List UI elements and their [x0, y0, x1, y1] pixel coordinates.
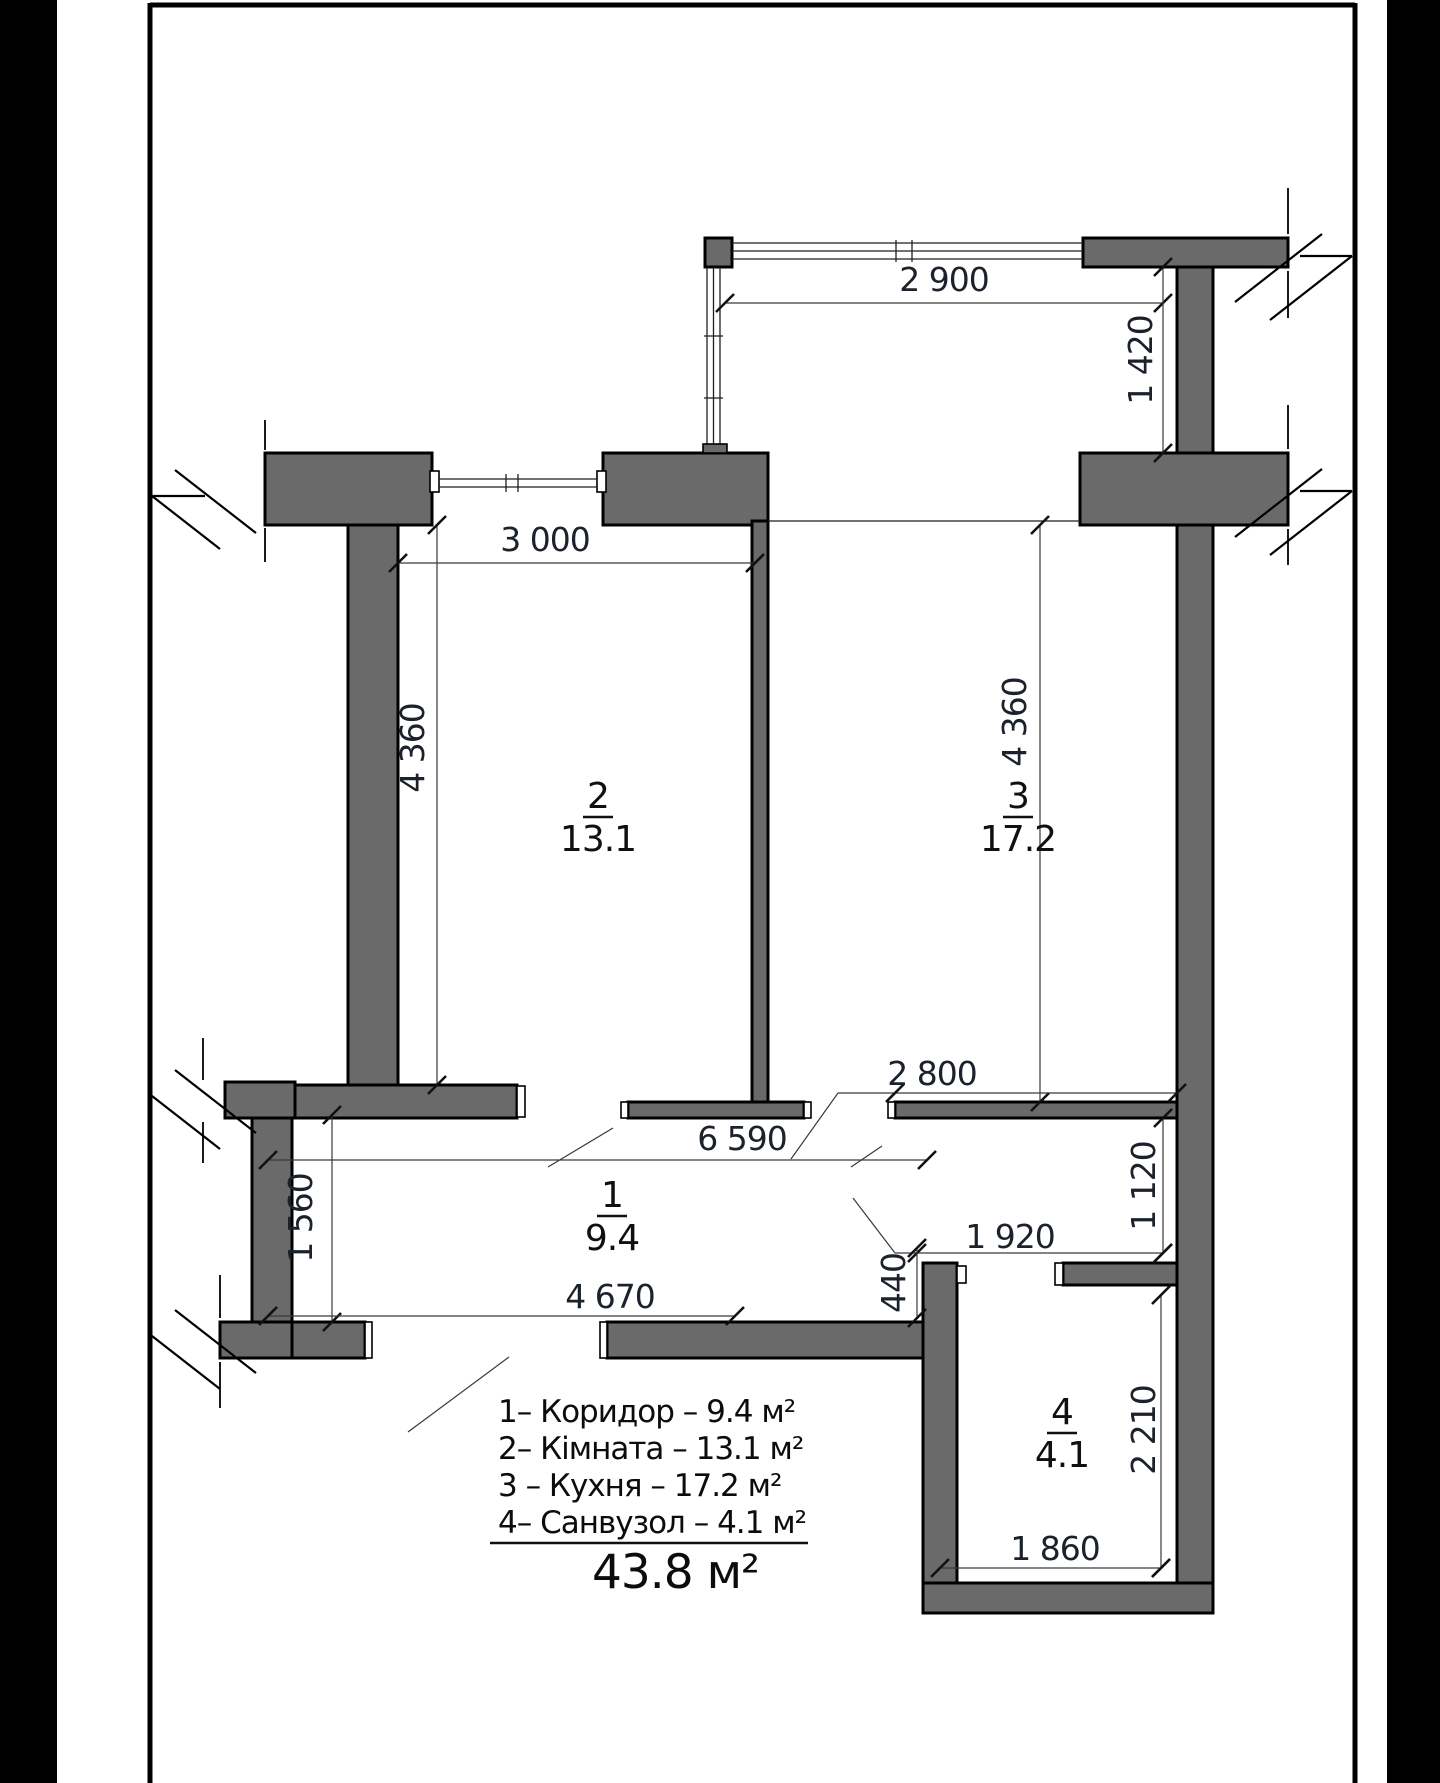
door-cap [365, 1322, 372, 1358]
wall-corridor-bottom [607, 1322, 923, 1358]
wall-bath-bottom [923, 1583, 1213, 1613]
door-cap [517, 1086, 525, 1117]
room3-area: 17.2 [980, 819, 1056, 860]
wall-segment [1080, 453, 1288, 525]
floorplan-page: 2 900 1 420 3 000 4 360 4 360 2 800 6 59… [0, 0, 1440, 1783]
room1-number: 1 [601, 1175, 623, 1216]
legend-line-3: 3 – Кухня – 17.2 м² [498, 1468, 781, 1504]
wall-segment [225, 1082, 295, 1118]
wall-bath-left [923, 1263, 957, 1613]
room1-area: 9.4 [585, 1218, 639, 1259]
right-black-strip [1387, 0, 1440, 1783]
wall-bath-top [1063, 1263, 1177, 1285]
dim-balcony-width: 2 900 [899, 260, 988, 299]
wall-corridor-top-mid [628, 1102, 804, 1118]
legend-total-area: 43.8 м² [592, 1545, 759, 1600]
glazing-base [703, 444, 727, 453]
dim-room2-height: 4 360 [393, 703, 432, 792]
wall-segment [705, 238, 732, 267]
wall-segment [603, 453, 768, 525]
window-cap [430, 471, 439, 492]
dim-balcony-depth: 1 420 [1121, 315, 1160, 404]
legend-line-1: 1– Коридор – 9.4 м² [498, 1394, 795, 1430]
dim-bath-bottom-width: 1 860 [1010, 1529, 1099, 1568]
window-cap [597, 471, 606, 492]
door-cap [621, 1102, 628, 1118]
dim-hall-left-height: 1 560 [281, 1173, 320, 1262]
door-cap [600, 1322, 607, 1358]
dim-kitchen-right-gap: 1 120 [1124, 1141, 1163, 1230]
room3-number: 3 [1007, 776, 1029, 817]
room2-area: 13.1 [560, 819, 636, 860]
dim-kitchen-height: 4 360 [995, 677, 1034, 766]
floorplan-canvas: 2 900 1 420 3 000 4 360 4 360 2 800 6 59… [0, 0, 1440, 1783]
dim-hall-span: 6 590 [697, 1119, 786, 1158]
dim-room2-width: 3 000 [500, 520, 589, 559]
wall-segment [1083, 238, 1288, 267]
wall-room2-left [348, 525, 398, 1085]
dim-bath-right-height: 2 210 [1124, 1385, 1163, 1474]
dim-bath-top-width: 1 920 [965, 1217, 1054, 1256]
dim-kitchen-wall: 2 800 [887, 1054, 976, 1093]
door-cap [888, 1102, 895, 1118]
legend-line-2: 2– Кімната – 13.1 м² [498, 1431, 803, 1467]
legend: 1– Коридор – 9.4 м² 2– Кімната – 13.1 м²… [490, 1394, 808, 1600]
room4-number: 4 [1051, 1392, 1073, 1433]
left-black-strip [0, 0, 57, 1783]
door-caps [365, 471, 1063, 1358]
wall-segment [265, 453, 432, 525]
room4-area: 4.1 [1035, 1435, 1089, 1476]
wall-segment [292, 1322, 365, 1358]
wall-room2-room3 [752, 521, 768, 1102]
dim-wall-offset: 440 [874, 1253, 913, 1313]
room-labels: 1 9.4 2 13.1 3 17.2 4 4.1 [560, 776, 1089, 1476]
door-cap [804, 1102, 811, 1118]
legend-line-4: 4– Санвузол – 4.1 м² [498, 1505, 806, 1541]
door-cap [1055, 1263, 1063, 1285]
dim-hall-bottom-width: 4 670 [565, 1277, 654, 1316]
room2-number: 2 [587, 776, 609, 817]
door-cap [957, 1266, 966, 1283]
